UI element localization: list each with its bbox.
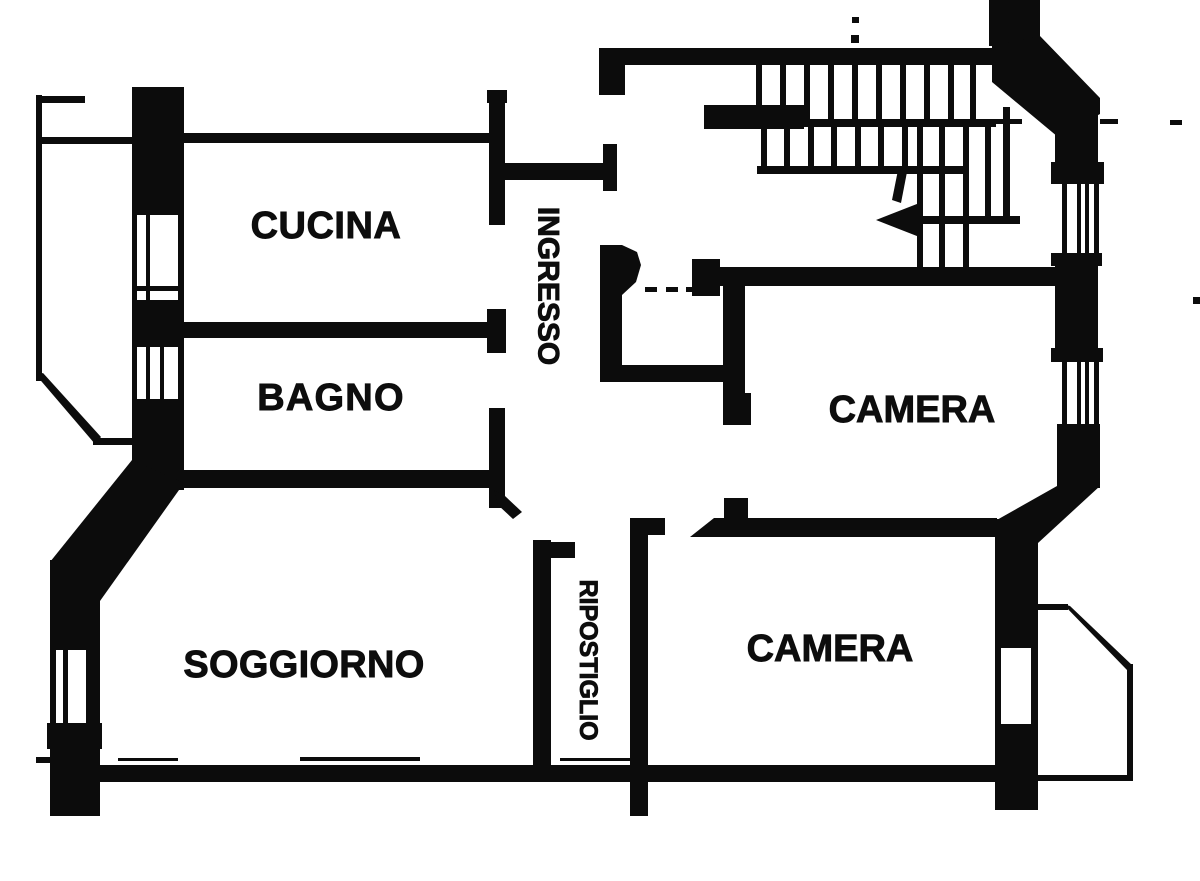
svg-text:RIPOSTIGLIO: RIPOSTIGLIO (574, 579, 602, 740)
svg-text:BAGNO: BAGNO (257, 377, 404, 419)
svg-text:CAMERA: CAMERA (747, 628, 914, 670)
svg-text:SOGGIORNO: SOGGIORNO (183, 644, 424, 686)
svg-text:INGRESSO: INGRESSO (532, 207, 565, 365)
svg-text:CAMERA: CAMERA (829, 389, 996, 431)
svg-text:CUCINA: CUCINA (251, 205, 402, 247)
